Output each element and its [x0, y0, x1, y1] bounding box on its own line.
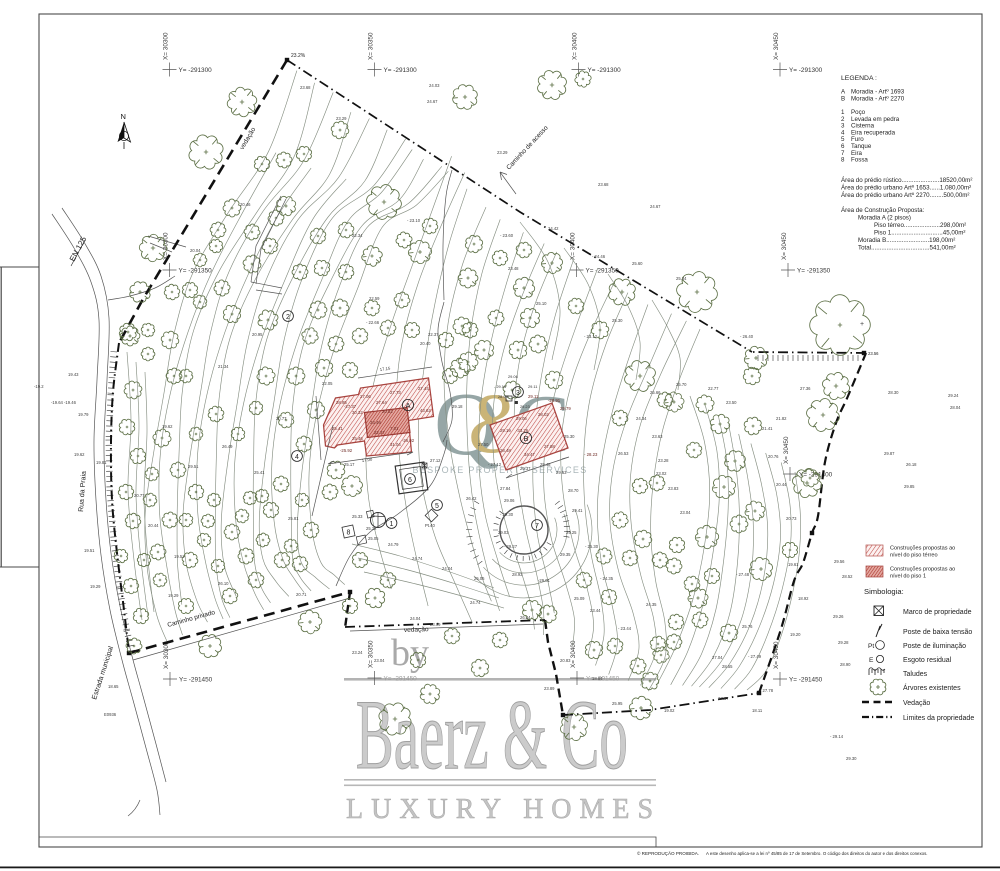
svg-text:29.35: 29.35: [560, 552, 571, 557]
svg-text:Piso térreo...................: Piso térreo.....................298,00m²: [874, 222, 966, 229]
svg-text:20.40: 20.40: [420, 341, 431, 346]
svg-text:- 29.30: - 29.30: [500, 512, 514, 517]
svg-text:25.41: 25.41: [254, 470, 265, 475]
svg-text:A este desenho aplica-se a lei: A este desenho aplica-se a lei nº 45/85 …: [706, 851, 928, 856]
svg-text:19.29: 19.29: [168, 593, 179, 598]
svg-text:- 22.66: - 22.66: [366, 320, 380, 325]
svg-text:© REPRODUÇÃO PROIBIDA.: © REPRODUÇÃO PROIBIDA.: [637, 850, 699, 856]
svg-text:25.05: 25.05: [474, 576, 485, 581]
svg-text:20.83: 20.83: [560, 658, 571, 663]
svg-text:23.83: 23.83: [668, 486, 679, 491]
svg-text:Área do prédio rústico........: Área do prédio rústico..................…: [841, 177, 972, 184]
svg-text:28.55: 28.55: [722, 664, 733, 669]
svg-text:20.95: 20.95: [252, 332, 263, 337]
svg-text:- 27.78: - 27.78: [760, 688, 774, 693]
svg-text:Esgoto residual: Esgoto residual: [903, 657, 952, 664]
svg-text:- 29.15: - 29.15: [494, 384, 506, 389]
svg-text:18.65: 18.65: [108, 684, 119, 689]
svg-text:29.06: 29.06: [508, 374, 518, 379]
svg-text:- 23.44: - 23.44: [618, 626, 632, 631]
svg-text:23.29: 23.29: [336, 116, 347, 121]
svg-text:28.94: 28.94: [498, 394, 509, 399]
svg-text:Taludes: Taludes: [903, 671, 928, 678]
svg-text:29.30: 29.30: [846, 756, 857, 761]
svg-text:27.84: 27.84: [500, 486, 511, 491]
svg-text:24.03: 24.03: [429, 83, 440, 88]
svg-text:X= 30350: X= 30350: [368, 640, 375, 668]
svg-text:24.67: 24.67: [650, 204, 661, 209]
svg-text:23.56: 23.56: [868, 351, 879, 356]
svg-text:29.51: 29.51: [188, 464, 199, 469]
svg-text:25.05: 25.05: [368, 536, 379, 541]
svg-text:- 27.48: - 27.48: [736, 572, 750, 577]
svg-text:19.51: 19.51: [174, 554, 185, 559]
svg-text:X= 30450: X= 30450: [781, 232, 788, 260]
svg-text:24.74: 24.74: [412, 556, 423, 561]
svg-text:- 27.12: - 27.12: [488, 462, 502, 467]
svg-text:19.43: 19.43: [68, 372, 79, 377]
svg-text:28.52: 28.52: [842, 574, 853, 579]
svg-text:- 23.60: - 23.60: [500, 233, 514, 238]
svg-text:Moradia - Artº 2270: Moradia - Artº 2270: [851, 96, 905, 103]
svg-text:19.29: 19.29: [90, 584, 101, 589]
svg-text:22.37: 22.37: [374, 430, 385, 435]
svg-text:Y= -291350: Y= -291350: [797, 268, 831, 275]
svg-text:29.48: 29.48: [540, 462, 551, 467]
svg-text:Poste de baixa tensão: Poste de baixa tensão: [903, 629, 972, 636]
svg-text:31.04: 31.04: [390, 442, 401, 447]
svg-text:20.76: 20.76: [768, 454, 779, 459]
svg-text:19.51: 19.51: [84, 548, 95, 553]
svg-text:Área do prédio urbano Artº 227: Área do prédio urbano Artº 2270........5…: [841, 192, 970, 199]
svg-text:25.09: 25.09: [574, 596, 585, 601]
svg-text:8: 8: [347, 530, 351, 537]
svg-text:22.59: 22.59: [369, 296, 380, 301]
svg-text:27.04: 27.04: [712, 655, 723, 660]
svg-text:27.44: 27.44: [418, 386, 429, 391]
svg-text:28.90: 28.90: [840, 662, 851, 667]
svg-text:25.76: 25.76: [742, 624, 753, 629]
svg-text:20.46: 20.46: [240, 202, 251, 207]
svg-text:Poste de iluminação: Poste de iluminação: [903, 643, 966, 650]
svg-text:29.23: 29.23: [520, 404, 530, 409]
svg-text:X= 30450: X= 30450: [783, 436, 790, 464]
svg-text:Moradia B.....................: Moradia B.........................198,00…: [858, 237, 955, 244]
svg-text:20.73: 20.73: [786, 516, 797, 521]
svg-text:29.06: 29.06: [516, 416, 527, 421]
svg-text:Y= -291350: Y= -291350: [179, 268, 213, 275]
svg-text:-33.26: -33.26: [516, 428, 529, 433]
svg-text:Marco de propriedade: Marco de propriedade: [903, 609, 972, 616]
svg-text:nível do piso térreo: nível do piso térreo: [890, 553, 938, 559]
svg-text:23.28: 23.28: [658, 458, 669, 463]
svg-text:Y= -291450: Y= -291450: [179, 677, 213, 684]
svg-text:23.50: 23.50: [726, 400, 737, 405]
svg-text:Moradia - Artº 1693: Moradia - Artº 1693: [851, 89, 905, 96]
svg-text:34.47: 34.47: [524, 452, 535, 457]
svg-text:Total.........................: Total..................................5…: [858, 245, 956, 252]
svg-text:Y= -291300: Y= -291300: [588, 67, 622, 74]
svg-text:22.37: 22.37: [428, 332, 439, 337]
svg-text:- 26.40: - 26.40: [740, 334, 754, 339]
svg-text:30.32: 30.32: [352, 410, 363, 415]
svg-text:22.34: 22.34: [352, 233, 363, 238]
svg-text:26.18: 26.18: [906, 462, 917, 467]
svg-text:23.48: 23.48: [508, 266, 519, 271]
svg-text:25.46: 25.46: [352, 436, 363, 441]
svg-text:N: N: [121, 112, 126, 121]
svg-text:Pt: Pt: [868, 643, 874, 650]
svg-text:nível do piso 1: nível do piso 1: [890, 574, 926, 580]
svg-text:33.49: 33.49: [370, 420, 381, 425]
svg-text:24.42: 24.42: [548, 226, 559, 231]
svg-text:27.06: 27.06: [360, 394, 371, 399]
svg-text:E: E: [869, 657, 874, 664]
svg-text:27.88: 27.88: [544, 444, 555, 449]
svg-text:29.25: 29.25: [566, 530, 577, 535]
svg-text:-25.92: -25.92: [340, 448, 353, 453]
svg-text:- 27.49: - 27.49: [748, 654, 762, 659]
svg-text:29.03: 29.03: [498, 530, 509, 535]
svg-text:by: by: [391, 632, 429, 674]
svg-text:X= 30450: X= 30450: [773, 32, 780, 60]
svg-text:25.10: 25.10: [536, 301, 547, 306]
svg-text:LUXURY HOMES: LUXURY HOMES: [346, 794, 661, 825]
svg-text:24.34: 24.34: [636, 416, 647, 421]
svg-text:28.30: 28.30: [888, 390, 899, 395]
svg-text:27.12: 27.12: [430, 458, 441, 463]
svg-text:19.61: 19.61: [788, 562, 799, 567]
svg-text:26.42: 26.42: [466, 496, 477, 501]
svg-text:23.29: 23.29: [497, 150, 508, 155]
svg-text:29.79: 29.79: [560, 406, 571, 411]
svg-text:5: 5: [435, 503, 439, 510]
svg-text:19.02: 19.02: [664, 708, 675, 713]
svg-text:- 28.23: - 28.23: [584, 452, 598, 457]
svg-text:-19.64 -19.46: -19.64 -19.46: [51, 400, 77, 405]
svg-text:- 29.14: - 29.14: [830, 734, 844, 739]
svg-text:23.63: 23.63: [652, 434, 663, 439]
svg-text:29.85: 29.85: [904, 484, 915, 489]
svg-text:28.04: 28.04: [950, 405, 961, 410]
svg-text:28.95: 28.95: [336, 400, 347, 405]
svg-text:29.11: 29.11: [528, 384, 537, 389]
svg-text:Árvores existentes: Árvores existentes: [903, 683, 961, 692]
svg-text:21.34: 21.34: [218, 364, 229, 369]
svg-text:28.70: 28.70: [568, 488, 579, 493]
svg-text:- 29.27: - 29.27: [504, 544, 518, 549]
svg-text:Y= -291450: Y= -291450: [789, 677, 823, 684]
svg-text:X= 30300: X= 30300: [163, 641, 170, 669]
svg-text:19.62: 19.62: [74, 452, 85, 457]
svg-text:25.95: 25.95: [612, 701, 623, 706]
svg-text:Y= -291350: Y= -291350: [586, 268, 620, 275]
svg-text:43.62: 43.62: [420, 408, 431, 413]
svg-text:18.92: 18.92: [798, 596, 809, 601]
svg-text:29.28: 29.28: [838, 640, 849, 645]
svg-text:20.04: 20.04: [190, 248, 201, 253]
svg-text:22.05: 22.05: [322, 381, 333, 386]
svg-text:A: A: [405, 401, 410, 410]
svg-text:X= 30400: X= 30400: [570, 640, 577, 668]
svg-text:29.06: 29.06: [504, 498, 515, 503]
svg-text:B: B: [523, 434, 528, 443]
svg-text:-26.92: -26.92: [402, 438, 415, 443]
svg-text:23.68: 23.68: [300, 85, 311, 90]
svg-text:25.41: 25.41: [332, 426, 343, 431]
svg-text:Limites da propriedade: Limites da propriedade: [903, 715, 974, 722]
svg-text:29.18: 29.18: [452, 404, 463, 409]
svg-text:25.66: 25.66: [650, 390, 661, 395]
svg-text:Y= -291300: Y= -291300: [179, 67, 213, 74]
svg-text:Baerz & Co: Baerz & Co: [356, 678, 628, 790]
svg-text:24.74: 24.74: [470, 600, 481, 605]
svg-text:25.34: 25.34: [676, 276, 687, 281]
svg-text:26.34: 26.34: [520, 615, 531, 620]
svg-text:24.04: 24.04: [410, 616, 421, 621]
svg-text:28.48: 28.48: [500, 448, 511, 453]
svg-text:23.04: 23.04: [374, 658, 385, 663]
svg-text:27.50: 27.50: [478, 442, 489, 447]
svg-text:25.30: 25.30: [564, 434, 575, 439]
svg-text:23.68: 23.68: [598, 182, 609, 187]
svg-text:Construções propostas ao: Construções propostas ao: [890, 546, 955, 552]
svg-text:2: 2: [286, 314, 290, 321]
svg-text:20.77: 20.77: [276, 416, 287, 421]
svg-text:24.04: 24.04: [442, 566, 453, 571]
svg-text:25.30: 25.30: [612, 318, 623, 323]
svg-text:29.37: 29.37: [520, 466, 531, 471]
svg-text:29.11: 29.11: [528, 394, 539, 399]
svg-text:Simbologia:: Simbologia:: [864, 587, 904, 596]
svg-text:23.2%: 23.2%: [291, 53, 306, 59]
svg-text:19.81: 19.81: [96, 460, 107, 465]
svg-text:29.26: 29.26: [833, 614, 844, 619]
svg-text:25.33: 25.33: [352, 514, 363, 519]
svg-text:19.62: 19.62: [162, 424, 173, 429]
svg-text:27.67: 27.67: [718, 696, 729, 701]
svg-text:23.24: 23.24: [352, 650, 363, 655]
svg-text:24.79: 24.79: [388, 542, 399, 547]
svg-text:20.77: 20.77: [134, 493, 145, 498]
svg-text:25.70: 25.70: [676, 382, 687, 387]
svg-text:LEGENDA :: LEGENDA :: [841, 75, 877, 82]
svg-text:8: 8: [841, 157, 845, 164]
svg-text:29.87: 29.87: [884, 451, 895, 456]
svg-text:28.93: 28.93: [512, 572, 523, 577]
svg-text:E0936: E0936: [104, 712, 117, 717]
svg-text:X= 30350: X= 30350: [368, 32, 375, 60]
svg-text:18.84: 18.84: [592, 676, 603, 681]
svg-text:18.11: 18.11: [752, 708, 763, 713]
svg-text:20.52: 20.52: [382, 409, 393, 414]
svg-text:26.10: 26.10: [218, 581, 229, 586]
svg-text:1: 1: [390, 521, 394, 528]
svg-text:X= 30300: X= 30300: [163, 32, 170, 60]
svg-text:24.67: 24.67: [427, 99, 438, 104]
svg-text:24.35: 24.35: [646, 602, 657, 607]
svg-text:19.79: 19.79: [78, 412, 89, 417]
svg-text:B: B: [841, 96, 845, 103]
svg-text:21.82: 21.82: [776, 416, 787, 421]
svg-text:- 23.10: - 23.10: [407, 218, 421, 223]
svg-text:Y= -291450: Y= -291450: [384, 676, 418, 683]
svg-text:20.71: 20.71: [296, 592, 307, 597]
svg-text:Construções propostas ao: Construções propostas ao: [890, 567, 955, 573]
svg-text:23.04: 23.04: [680, 510, 691, 515]
svg-text:27.36: 27.36: [800, 386, 811, 391]
svg-text:6: 6: [408, 477, 412, 484]
svg-text:- 23.12: - 23.12: [584, 334, 598, 339]
svg-text:X= 30400: X= 30400: [570, 232, 577, 260]
svg-text:25.17: 25.17: [344, 462, 355, 467]
svg-text:23.89: 23.89: [544, 686, 555, 691]
svg-text:28.02: 28.02: [538, 412, 549, 417]
svg-text:vedação: vedação: [404, 626, 429, 634]
svg-text:23.44: 23.44: [590, 608, 601, 613]
svg-text:19.20: 19.20: [790, 632, 801, 637]
svg-text:26.49: 26.49: [222, 444, 233, 449]
svg-text:Área do prédio urbano Artº 165: Área do prédio urbano Artº 1653......1.0…: [841, 185, 971, 192]
svg-text:22.77: 22.77: [708, 386, 719, 391]
svg-text:Moradia A (2 pisos): Moradia A (2 pisos): [858, 215, 911, 222]
svg-text:26.53: 26.53: [618, 451, 629, 456]
svg-text:27.73: 27.73: [390, 390, 401, 395]
svg-text:7: 7: [535, 523, 539, 530]
svg-text:-29.01: -29.01: [538, 578, 551, 583]
svg-text:25.60: 25.60: [632, 261, 643, 266]
svg-text:- 24.35: - 24.35: [600, 576, 614, 581]
svg-text:Fossa: Fossa: [851, 157, 868, 164]
svg-text:4: 4: [295, 454, 299, 461]
svg-text:- 24.46: - 24.46: [592, 254, 606, 259]
svg-text:20.44: 20.44: [148, 523, 159, 528]
svg-text:29.56: 29.56: [834, 559, 845, 564]
svg-text:Pt.40: Pt.40: [425, 523, 435, 528]
svg-text:Y= -291300: Y= -291300: [789, 67, 823, 74]
svg-text:29.41: 29.41: [572, 508, 583, 513]
svg-text:25.22: 25.22: [366, 526, 377, 531]
svg-text:29.24: 29.24: [948, 393, 959, 398]
svg-text:29.53: 29.53: [556, 470, 567, 475]
svg-text:25.81: 25.81: [288, 516, 299, 521]
svg-text:Vedação: Vedação: [903, 700, 930, 707]
svg-text:-28.91: -28.91: [548, 398, 561, 403]
svg-text:Área de Construção Proposta:: Área de Construção Proposta:: [841, 207, 925, 214]
svg-text:X= 30400: X= 30400: [572, 32, 579, 60]
svg-text:- 25.30: - 25.30: [585, 544, 599, 549]
svg-text:3: 3: [516, 390, 520, 397]
svg-text:21.41: 21.41: [762, 426, 773, 431]
svg-text:23.99: 23.99: [430, 622, 441, 627]
svg-text:+: +: [860, 321, 864, 328]
svg-text:Y= -291300: Y= -291300: [384, 67, 418, 74]
svg-text:23.02: 23.02: [656, 471, 667, 476]
svg-text:29.19: 29.19: [500, 428, 511, 433]
svg-text:20.44: 20.44: [776, 482, 787, 487]
svg-text:27.64: 27.64: [376, 400, 387, 405]
svg-text:Piso 1........................: Piso 1..............................45,0…: [874, 230, 965, 237]
svg-text:7.01: 7.01: [390, 426, 399, 431]
svg-text:-19.2: -19.2: [34, 384, 44, 389]
